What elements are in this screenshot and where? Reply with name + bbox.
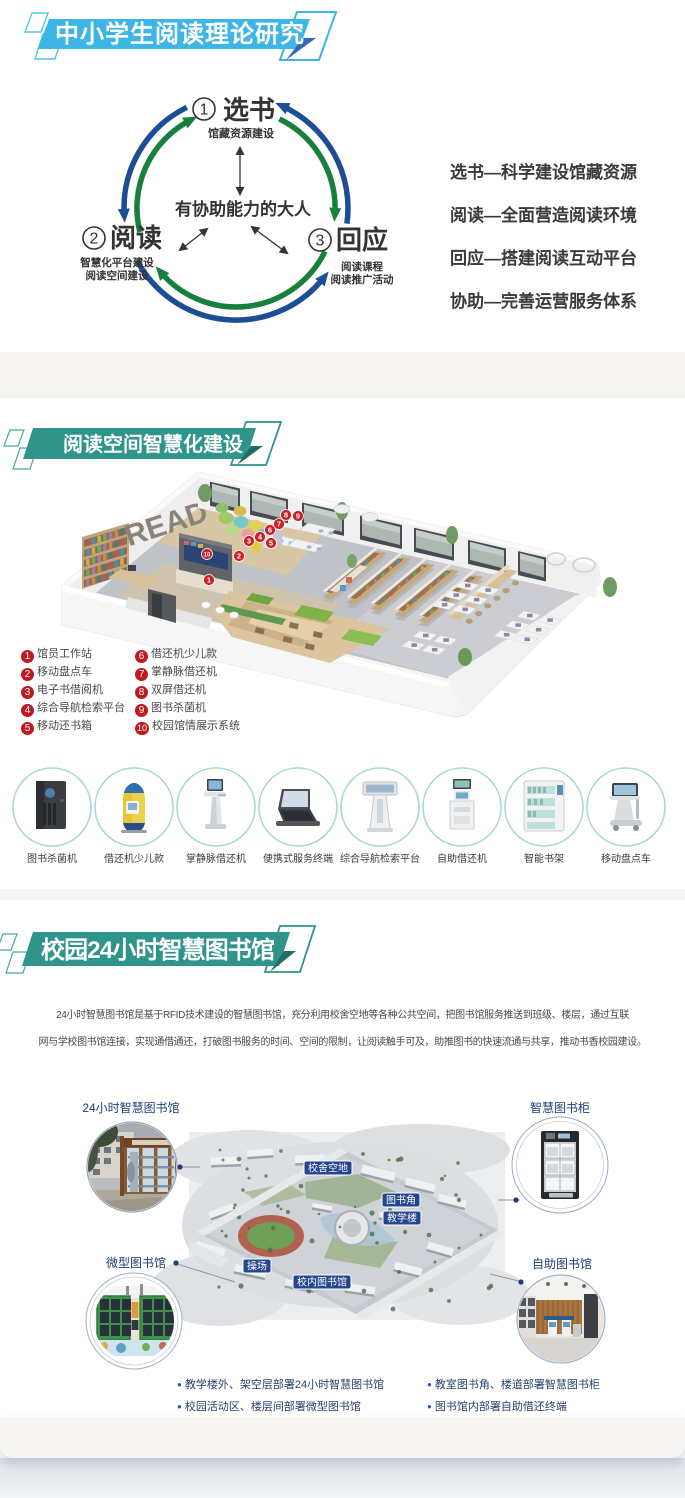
svg-text:图书杀菌机: 图书杀菌机 (27, 852, 77, 865)
svg-text:借还机少儿款: 借还机少儿款 (104, 852, 164, 865)
svg-text:24小时智慧图书馆: 24小时智慧图书馆 (82, 1100, 179, 1115)
svg-text:校内图书馆: 校内图书馆 (297, 1276, 347, 1289)
svg-text:智慧化平台建设: 智慧化平台建设 (79, 256, 154, 269)
svg-text:智慧图书柜: 智慧图书柜 (530, 1100, 590, 1115)
svg-text:选书: 选书 (223, 95, 275, 125)
svg-text:移动盘点车: 移动盘点车 (601, 852, 651, 865)
svg-text:操场: 操场 (247, 1260, 267, 1273)
svg-text:3: 3 (316, 233, 325, 250)
svg-text:阅读课程: 阅读课程 (341, 260, 383, 273)
svg-text:阅读空间智慧化建设: 阅读空间智慧化建设 (63, 432, 243, 456)
svg-text:2: 2 (90, 231, 99, 248)
svg-text:阅读推广活动: 阅读推广活动 (331, 273, 394, 286)
svg-text:9: 9 (296, 512, 300, 521)
svg-text:校园24小时智慧图书馆: 校园24小时智慧图书馆 (41, 936, 275, 964)
svg-text:回应: 回应 (336, 225, 388, 255)
svg-text:校舍空地: 校舍空地 (308, 1162, 348, 1175)
svg-text:教学楼: 教学楼 (387, 1212, 417, 1225)
svg-text:自助借还机: 自助借还机 (437, 852, 487, 865)
svg-text:智能书架: 智能书架 (524, 852, 564, 865)
svg-text:8: 8 (284, 511, 288, 520)
svg-text:图书角: 图书角 (386, 1195, 416, 1207)
svg-text:3: 3 (247, 537, 251, 546)
svg-text:有协助能力的大人: 有协助能力的大人 (175, 199, 312, 219)
svg-text:微型图书馆: 微型图书馆 (106, 1255, 166, 1270)
svg-text:7: 7 (277, 520, 281, 529)
svg-text:2: 2 (237, 552, 241, 561)
svg-text:10: 10 (204, 553, 211, 559)
svg-text:综合导航检索平台: 综合导航检索平台 (340, 852, 420, 865)
svg-text:掌静脉借还机: 掌静脉借还机 (186, 852, 246, 865)
svg-text:5: 5 (269, 539, 273, 548)
svg-text:1: 1 (207, 576, 211, 585)
svg-text:馆藏资源建设: 馆藏资源建设 (208, 126, 275, 140)
svg-text:阅读空间建设: 阅读空间建设 (86, 269, 149, 282)
svg-text:中小学生阅读理论研究: 中小学生阅读理论研究 (55, 20, 304, 48)
svg-text:1: 1 (200, 102, 209, 119)
svg-text:阅读: 阅读 (110, 223, 162, 253)
svg-text:自助图书馆: 自助图书馆 (532, 1256, 592, 1271)
svg-text:便携式服务终端: 便携式服务终端 (263, 852, 333, 865)
svg-text:6: 6 (268, 526, 272, 535)
